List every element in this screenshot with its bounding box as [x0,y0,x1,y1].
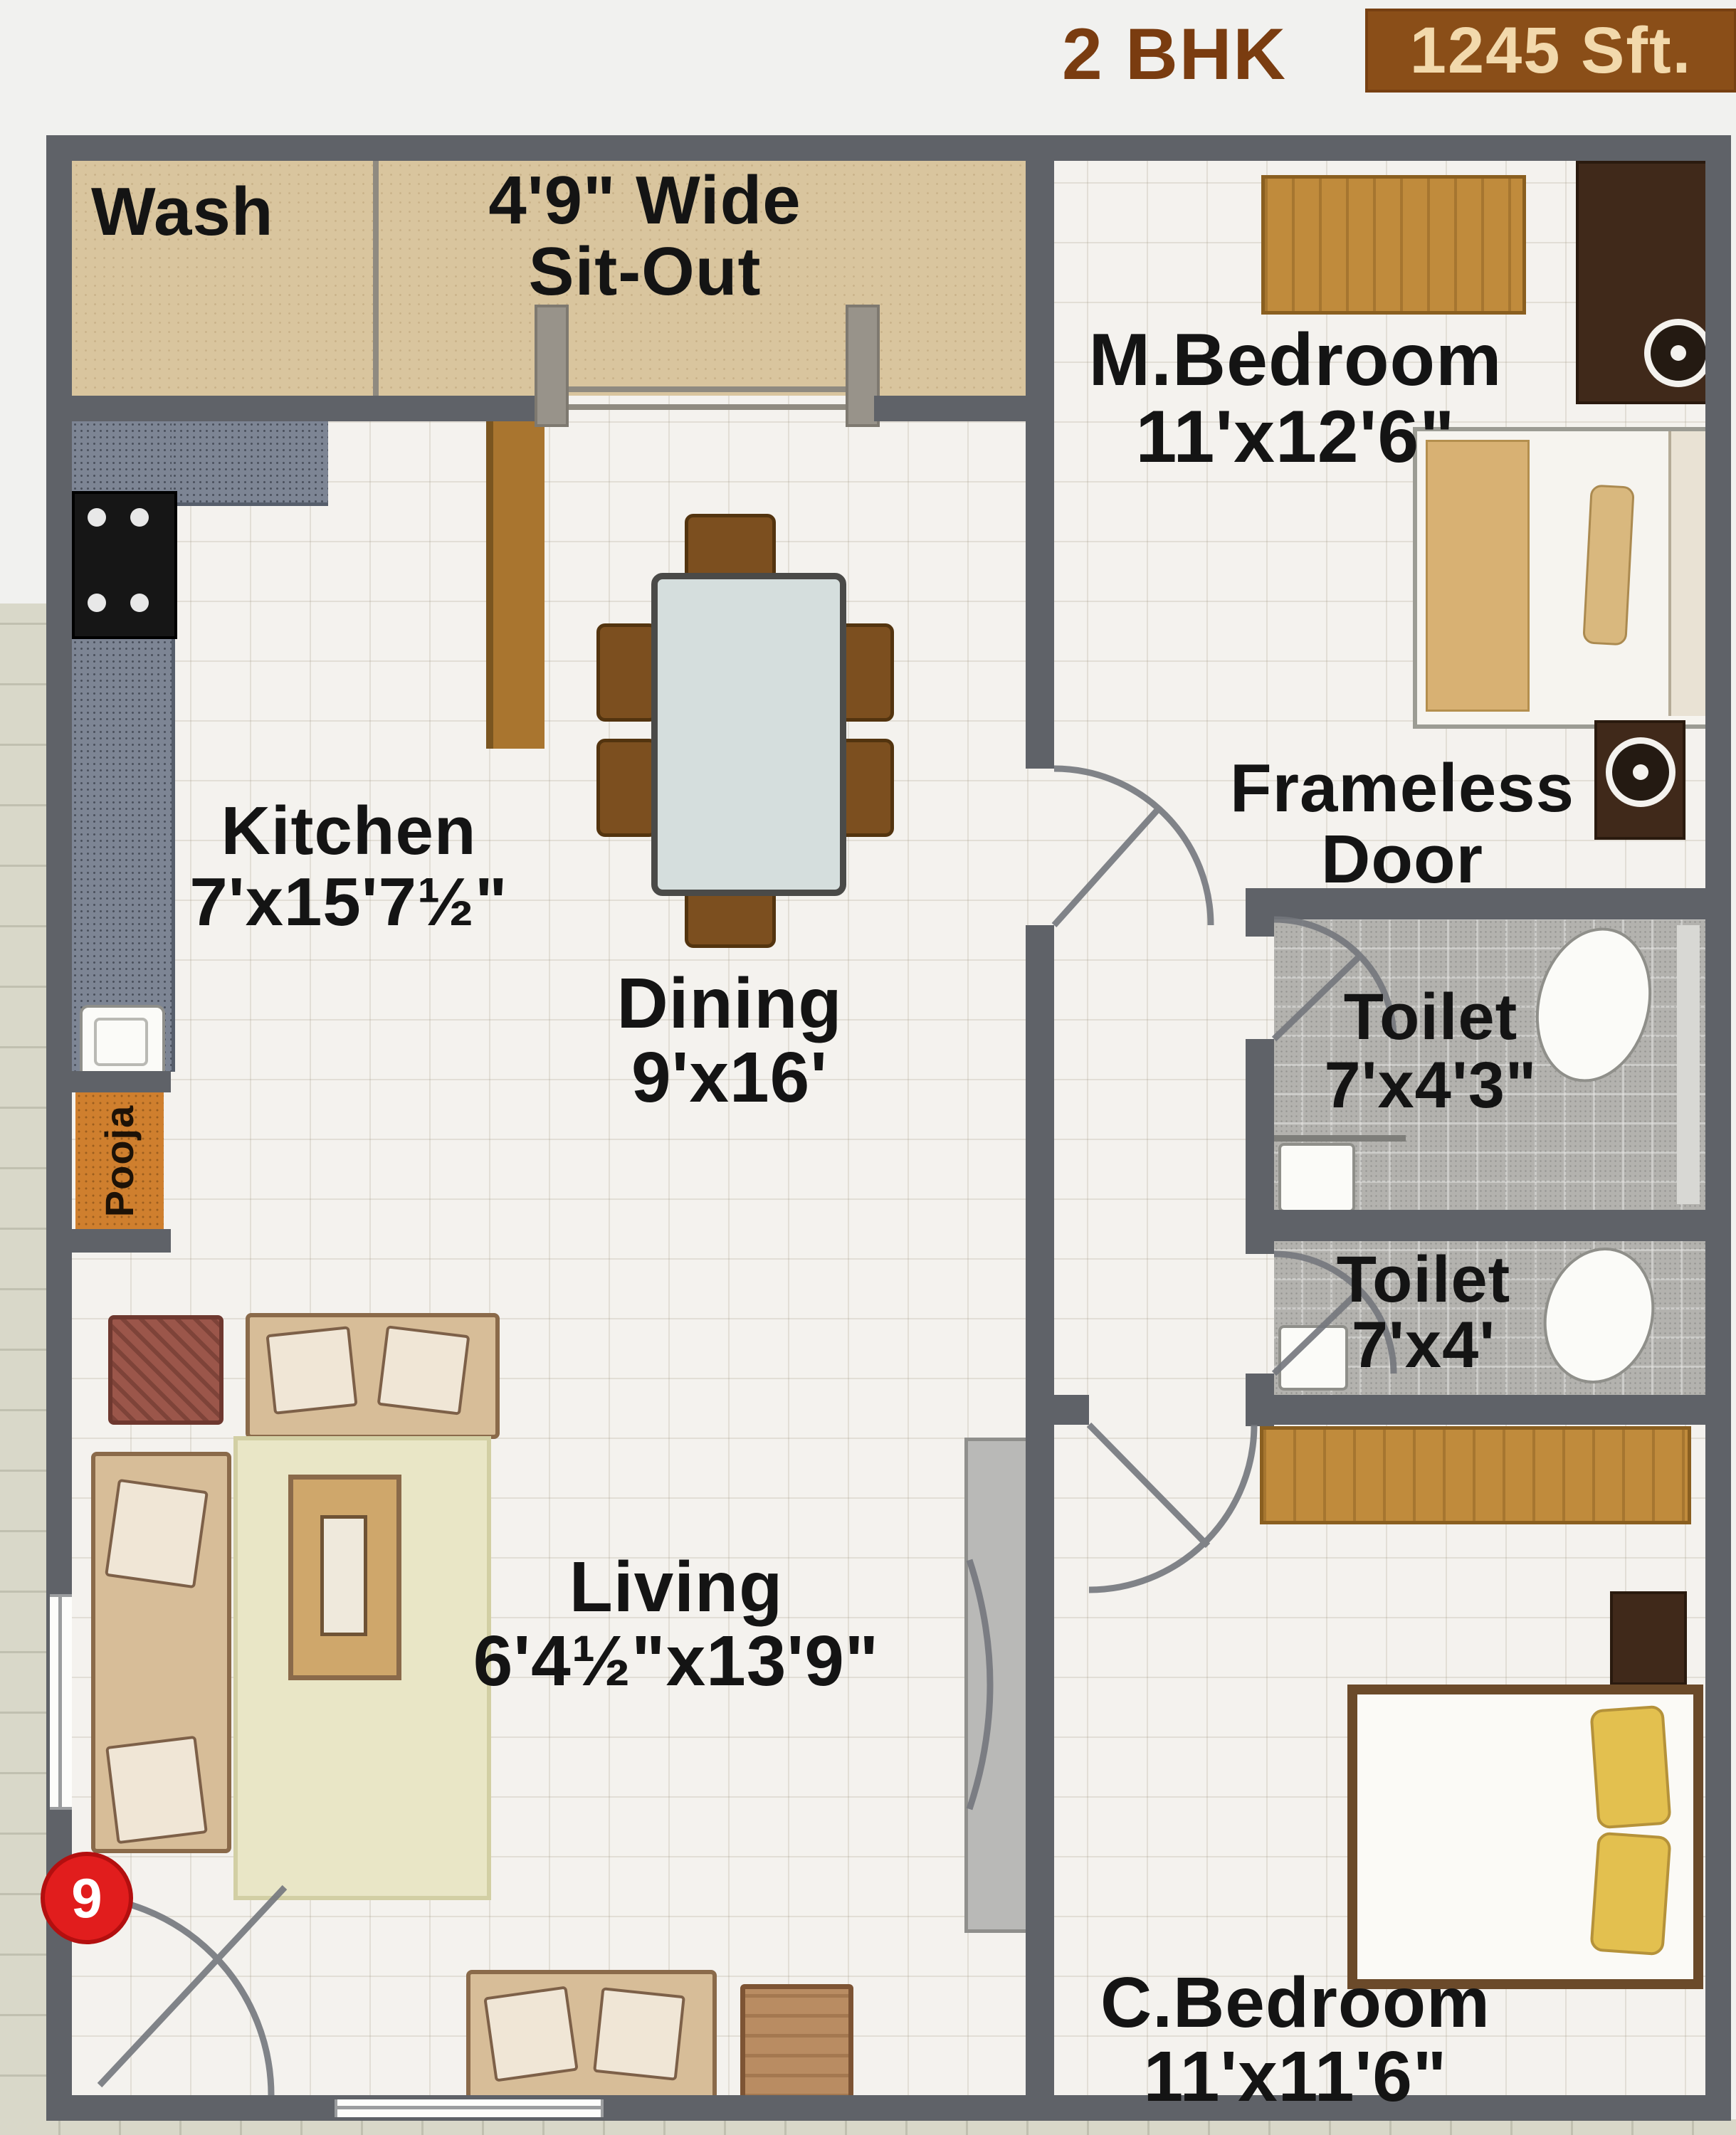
toilet1-label: Toilet 7'x4'3" [1281,984,1580,1119]
entry-marker-badge: 9 [41,1852,133,1944]
frameless-door-label: Frameless Door [1203,753,1601,895]
toilet2-label: Toilet 7'x4' [1288,1247,1559,1378]
mbedroom-label: M.Bedroom 11'x12'6" [1046,322,1545,475]
mbedroom-door-leaf [1054,808,1159,925]
wash-label: Wash [91,176,273,248]
cbedroom-panel-arc [969,1560,990,1809]
kitchen-label: Kitchen 7'x15'7½" [149,796,548,938]
cbedroom-label: C.Bedroom 11'x11'6" [1039,1966,1552,2114]
dining-label: Dining 9'x16' [562,966,897,1114]
cbedroom-door-leaf [1089,1425,1208,1546]
sitout-label: 4'9" Wide Sit-Out [427,165,863,307]
entry-marker-number: 9 [71,1866,102,1931]
living-label: Living 6'4½"x13'9" [427,1550,925,1698]
